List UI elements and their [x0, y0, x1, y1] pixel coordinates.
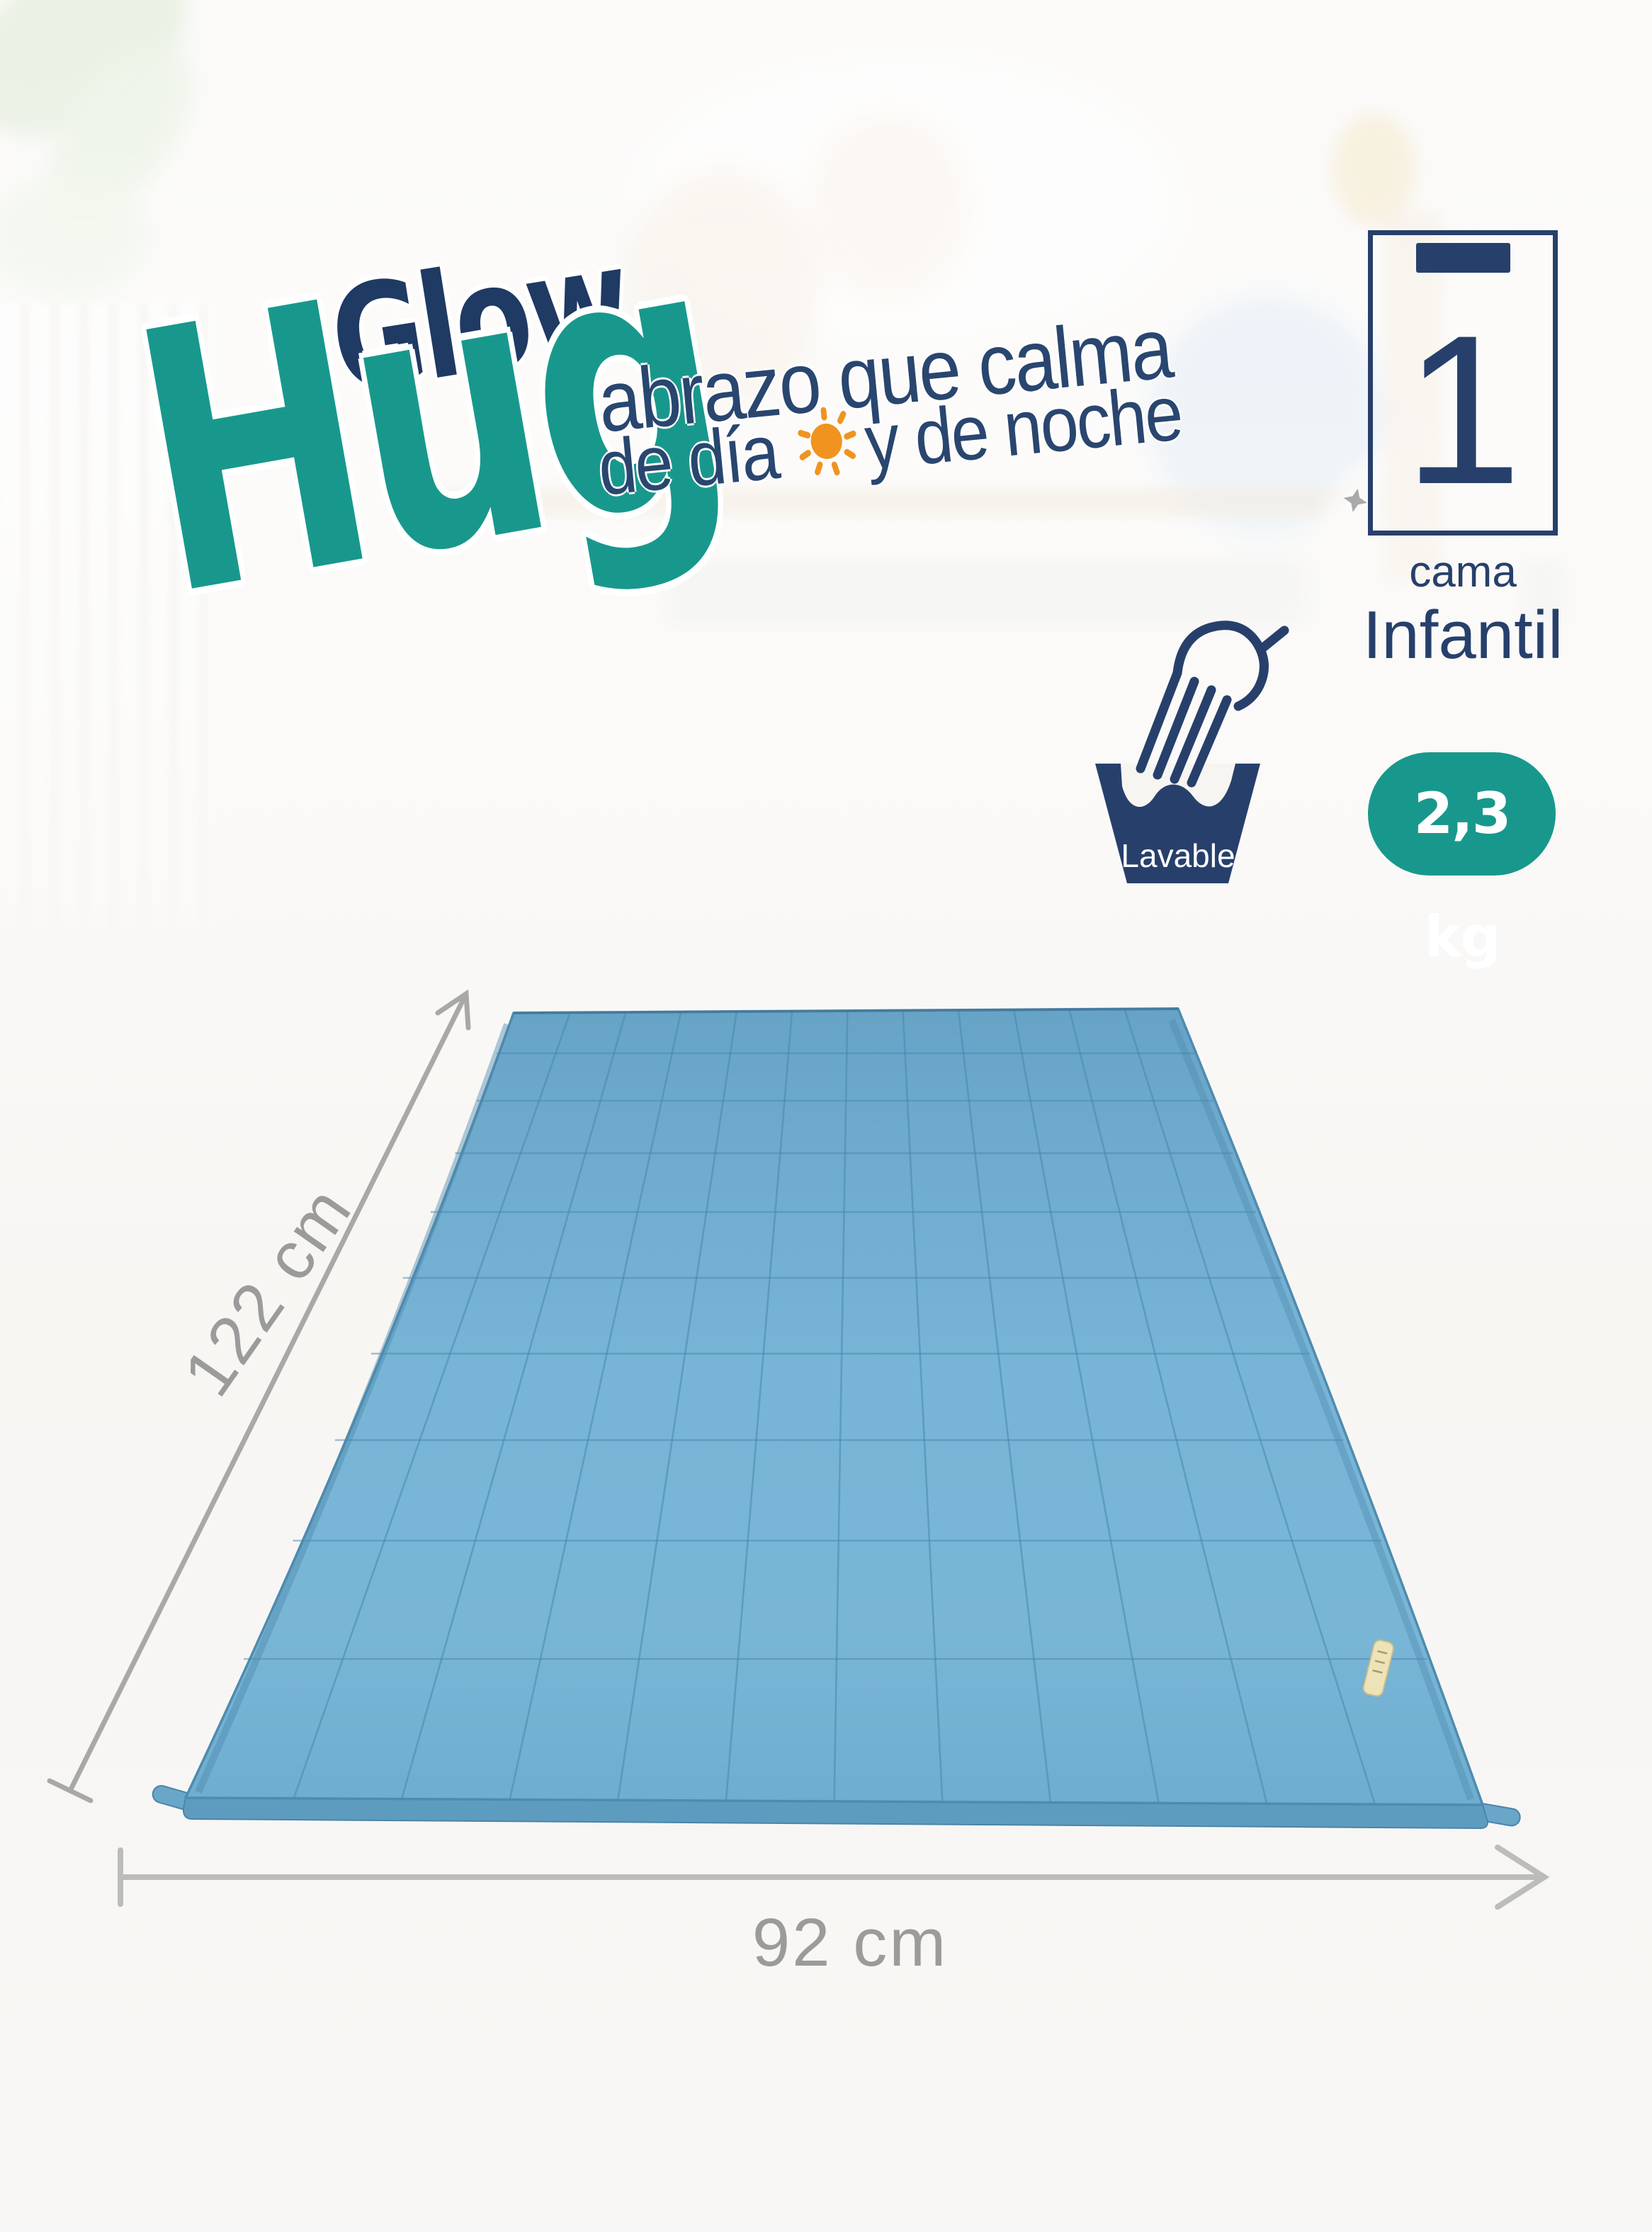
product-infographic: { "brand": { "word1": "Glow", "word2": "…	[0, 0, 1652, 2232]
moon-icon	[1301, 459, 1374, 533]
bed-label-big: Infantil	[1321, 596, 1605, 674]
washable-label: Lavable	[1121, 837, 1235, 874]
bed-count: 1	[1373, 303, 1553, 516]
dimension-arrow-width	[120, 1847, 1544, 1907]
tagline-line2-day: de día	[594, 407, 781, 514]
sun-icon	[791, 402, 864, 499]
product-mat	[151, 1009, 1522, 1828]
handwash-icon: Lavable	[1095, 625, 1284, 883]
bed-size-icon: 1	[1368, 230, 1558, 536]
dimension-label-width: 92 cm	[701, 1904, 999, 1982]
wash-hand	[1141, 625, 1284, 783]
mat-top-surface	[186, 1009, 1483, 1805]
bed-label-small: cama	[1321, 547, 1605, 597]
bed-pillow-glyph	[1416, 243, 1510, 273]
weight-badge: 2,3 kg	[1368, 752, 1556, 876]
